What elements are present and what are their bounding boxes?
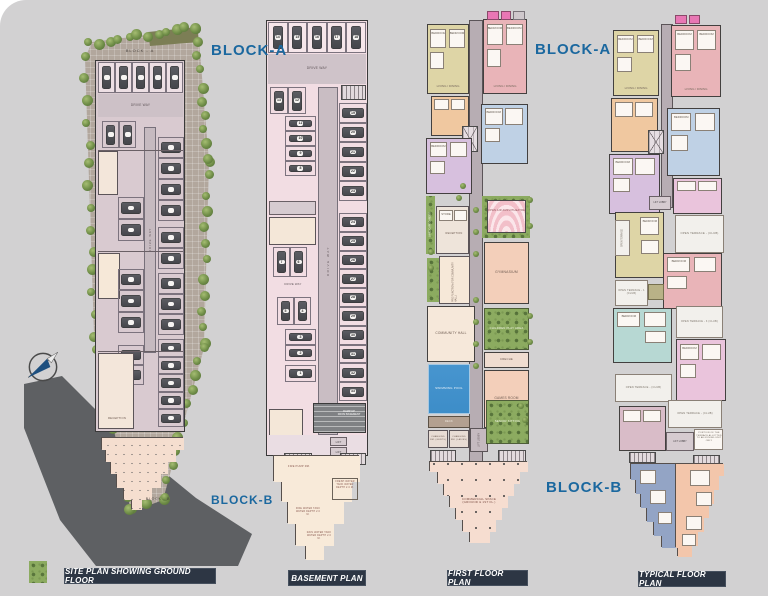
room: BEDROOM (667, 257, 690, 272)
parking-number: 26 (350, 258, 356, 263)
basement-ramp-label: RAMP UPFROM BASEMENT (334, 410, 364, 416)
parking-stall: 4 (294, 297, 311, 325)
parking-stall: 19 (339, 103, 367, 123)
car-icon (161, 163, 181, 174)
room (430, 52, 444, 68)
parking-number (168, 381, 174, 386)
caption-basement-text: BASEMENT PLAN (291, 574, 363, 583)
parking-stall (158, 227, 184, 248)
block-b-label-right: BLOCK-B (546, 479, 622, 496)
room (658, 512, 672, 524)
bush-icon (473, 207, 479, 213)
car-icon: 32 (342, 368, 363, 378)
parking-number (128, 320, 134, 325)
typical-open-terrace-v: OPEN TERRACE (615, 220, 630, 256)
car-icon: 33 (342, 387, 363, 397)
parking-number (108, 132, 114, 137)
room-label: BEDROOM (614, 161, 632, 164)
car-icon (121, 295, 141, 307)
tree-icon (201, 111, 210, 120)
car-icon (161, 319, 181, 330)
basement-store-room (269, 217, 316, 245)
parking-stall (158, 273, 184, 294)
site-drive-strip-label: DRIVE WAY (148, 228, 152, 252)
room-label: BEDROOM (638, 38, 654, 41)
tree-icon (192, 51, 201, 60)
room (682, 534, 696, 546)
typical-open-terrace-r2: OPEN TERRACE - 3 (CLUB) (676, 306, 723, 338)
typical-open-terrace-l1: OPEN TERRACE - 1 (CLUB) (615, 280, 648, 306)
parking-number: 25 (350, 239, 356, 244)
site-block-a-building: DRIVE WAY DRIVE WAY RECEPTION (95, 60, 185, 432)
site-utility-room-1 (98, 151, 118, 195)
car-icon: 2 (289, 349, 313, 357)
parking-number (168, 281, 174, 286)
parking-number (168, 187, 174, 192)
typical-unit-teal: BEDROOM (613, 308, 672, 363)
parking-stall: 16 (307, 22, 327, 53)
parking-number: 31 (350, 352, 356, 357)
parking-stall (118, 312, 144, 333)
tree-icon (113, 441, 124, 452)
north-compass-icon (22, 346, 64, 388)
car-icon (161, 278, 181, 289)
room-label: STORE (440, 213, 452, 216)
tree-icon (201, 239, 210, 248)
room: BEDROOM (697, 30, 716, 50)
parking-stall: 26 (339, 251, 367, 270)
caption-typical-floor-plan: TYPICAL FLOOR PLAN (638, 571, 726, 587)
typical-terrace-note: PORTION OF THE TERRACE ALLOTTED TO ADJOI… (696, 432, 722, 442)
car-icon: 31 (342, 349, 363, 359)
parking-number (125, 132, 131, 137)
room-label: BEDROOM (507, 27, 522, 30)
room (643, 410, 661, 422)
parking-stall: 20 (339, 123, 367, 143)
site-reception-label: RECEPTION (100, 417, 134, 420)
tree-icon (124, 504, 135, 515)
first-deck: DECK (428, 416, 470, 428)
bush-icon (473, 319, 479, 325)
room-label: LIVING / DINING (428, 85, 468, 88)
first-unit-red: BEDROOM BEDROOM LIVING / DINING (483, 19, 527, 94)
room (671, 135, 688, 151)
site-block-a-label: BLOCK - A (110, 49, 170, 54)
room-label: BEDROOM (681, 347, 698, 350)
first-changing-gents-label: CHANGING RM. (GENTS) (429, 436, 447, 441)
tree-icon (86, 141, 95, 150)
car-icon: 17 (331, 26, 341, 49)
basement-drive-strip: DRIVE WAY (318, 87, 338, 435)
room: BEDROOM (671, 113, 691, 131)
tree-icon (113, 35, 122, 44)
room (677, 181, 696, 191)
block-a-label-left: BLOCK-A (211, 42, 287, 59)
block-a-label-right: BLOCK-A (535, 41, 611, 58)
bush-icon (527, 313, 533, 319)
bush-icon (527, 197, 533, 203)
car-icon (123, 125, 132, 145)
basement-stalls-col-g: 24252627282930313233 (339, 213, 367, 401)
parking-stall: 21 (339, 142, 367, 162)
first-changing-gents: CHANGING RM. (GENTS) (428, 430, 448, 448)
parking-stall: 31 (339, 345, 367, 364)
parking-stall: 33 (339, 382, 367, 401)
typical-open-terrace-tower: OPEN TERRACE - (CLUB) (668, 400, 722, 428)
tree-icon (106, 37, 116, 47)
typical-unit-khaki-1: BEDROOM BEDROOM LIVING / DINING (613, 30, 659, 96)
car-icon: 6 (294, 251, 303, 273)
tree-icon (172, 24, 183, 35)
parking-number (104, 75, 110, 80)
tree-icon (202, 206, 213, 217)
basement-stalls-pair-a: 1312 (270, 87, 306, 114)
car-icon (161, 232, 181, 243)
room (487, 49, 501, 67)
parking-number (168, 256, 174, 261)
room (650, 490, 666, 504)
parking-stall: 24 (339, 213, 367, 232)
tree-icon (197, 307, 206, 316)
first-amphitheatre (487, 200, 526, 233)
car-icon (161, 396, 181, 405)
room (645, 331, 667, 343)
tree-icon (122, 476, 131, 485)
typical-unit-pink-2: BEDROOM (676, 339, 726, 401)
wall (98, 150, 183, 151)
bush-icon (527, 339, 533, 345)
room-label: BEDROOM (641, 220, 658, 223)
typical-lift-lobby-tower: LIFT LOBBY (666, 432, 694, 451)
typical-open-terrace-2 (648, 284, 664, 300)
room (694, 257, 717, 272)
first-children-play: CHILDREN PLAY AREA (484, 308, 529, 350)
car-icon (161, 378, 181, 387)
bush-icon (428, 249, 434, 255)
car-icon (121, 317, 141, 329)
site-stall-col-r4 (158, 339, 184, 427)
car-icon: 15 (292, 26, 302, 49)
parking-number (172, 75, 178, 80)
parking-stall: 18 (346, 22, 366, 53)
car-icon: 9 (289, 150, 313, 158)
tree-icon (200, 291, 210, 301)
room-label: BEDROOM (698, 33, 715, 36)
room (635, 102, 653, 117)
site-stall-col-c2 (118, 269, 144, 333)
parking-stall: 13 (270, 87, 288, 114)
parking-number (128, 228, 134, 233)
room: BEDROOM (675, 30, 694, 50)
parking-stall: 27 (339, 269, 367, 288)
parking-stall: 1 (285, 365, 316, 382)
parking-number: 27 (350, 277, 356, 282)
basement-driveway-label: DRIVE WAY (307, 67, 327, 71)
first-changing-ladies: CHANGING RM. (LADIES) (449, 430, 469, 448)
bush-icon (473, 251, 479, 257)
tree-icon (94, 39, 105, 50)
bush-icon (473, 363, 479, 369)
room (667, 276, 686, 289)
parking-stall (158, 314, 184, 335)
parking-number: 2 (297, 351, 303, 356)
bush-icon (473, 297, 479, 303)
tree-icon (200, 338, 211, 349)
typical-lift-lobby-top-label: LIFT LOBBY (654, 202, 667, 204)
parking-stall: 3 (285, 329, 316, 345)
parking-number: 17 (334, 35, 340, 40)
basement-fire-tank-label: FIRE WATER TANK WATER DEPTH 2.0 M. (294, 508, 322, 516)
bush-icon (518, 403, 524, 409)
car-icon: 30 (342, 330, 363, 340)
parking-stall (118, 219, 144, 241)
tree-icon (199, 222, 209, 232)
parking-number (168, 166, 174, 171)
basement-rain-tank-label: RAIN WATER TANK WATER DEPTH 2.0 M. (306, 532, 332, 540)
first-corridor (469, 20, 483, 462)
room (617, 57, 632, 72)
room-label: BEDROOM (450, 32, 464, 35)
first-prefunction: PRE FUNCTION (FOR COMMUNITY HALL) (439, 256, 470, 304)
first-stairs-left (430, 450, 456, 462)
site-driveway-band: DRIVE WAY (98, 94, 183, 117)
block-b-label-left: BLOCK-B (211, 493, 273, 507)
basement-stalls-col-b: 1920212223 (339, 103, 367, 201)
first-landscape-label: LANDSCAPE GARDEN (430, 213, 432, 237)
parking-number: 4 (300, 309, 306, 314)
car-icon: 4 (298, 301, 307, 322)
caption-basement-plan: BASEMENT PLAN (288, 570, 366, 586)
tree-icon (205, 157, 215, 167)
room: BEDROOM (640, 217, 659, 235)
parking-stall (115, 62, 132, 93)
parking-number (128, 277, 134, 282)
basement-drive-strip-label: DRIVE WAY (326, 246, 330, 276)
room: BEDROOM (449, 29, 465, 48)
room: BEDROOM (613, 158, 633, 174)
car-icon: 1 (289, 369, 313, 378)
parking-number: 19 (350, 111, 356, 116)
parking-number (138, 75, 144, 80)
room (698, 181, 717, 191)
first-gymnasium: GYMNASIUM (484, 242, 529, 304)
first-prefunction-label: PRE FUNCTION (FOR COMMUNITY HALL) (452, 258, 458, 302)
tree-icon (162, 476, 170, 484)
car-icon: 10 (289, 135, 313, 143)
room (644, 312, 667, 327)
room (680, 364, 696, 378)
car-icon (161, 253, 181, 264)
parking-number: 12 (294, 98, 300, 103)
parking-stall: 22 (339, 162, 367, 182)
first-deck-label: DECK (445, 421, 453, 424)
basement-driveway-label-2: DRIVE WAY (273, 283, 313, 286)
car-icon: 19 (342, 108, 363, 119)
tree-icon (190, 23, 201, 34)
tree-icon (116, 459, 124, 467)
site-stall-pair (102, 121, 136, 148)
room-label: BEDROOM (486, 111, 502, 114)
parking-stall (158, 179, 184, 200)
parking-number: 8 (297, 166, 303, 171)
parking-stall: 30 (339, 326, 367, 345)
car-icon (136, 66, 145, 89)
parking-number (168, 302, 174, 307)
car-icon: 7 (277, 251, 286, 273)
car-icon: 20 (342, 127, 363, 138)
parking-stall: 2 (285, 345, 316, 361)
site-drive-strip: DRIVE WAY (144, 127, 156, 353)
bush-icon (473, 341, 479, 347)
room (613, 178, 630, 192)
plan-sheet: DRIVE WAY DRIVE WAY RECEPTION BLOCK - A … (0, 0, 768, 596)
parking-number: 23 (350, 189, 356, 194)
wall (98, 251, 183, 252)
basement-fresh-tank-label: FRESH WATER TANK WATER DEPTH 2.0 M. (333, 481, 357, 489)
room: BEDROOM (637, 35, 655, 53)
parking-stall: 29 (339, 307, 367, 326)
bush-icon (522, 417, 528, 423)
tree-icon (197, 97, 207, 107)
tree-icon (170, 446, 180, 456)
first-children-play-label: CHILDREN PLAY AREA (490, 327, 524, 330)
typical-open-terrace-r1-label: OPEN TERRACE - (CLUB) (680, 232, 720, 235)
room (695, 113, 715, 131)
caption-typical-text: TYPICAL FLOOR PLAN (639, 570, 725, 588)
room-label: BEDROOM (668, 260, 689, 263)
parking-number: 14 (275, 35, 281, 40)
parking-stall (119, 121, 136, 148)
parking-number: 3 (297, 335, 303, 340)
first-changing-ladies-label: CHANGING RM. (LADIES) (450, 436, 468, 441)
basement-stalls-col-e: 32 (285, 329, 316, 361)
typical-unit-blue: BEDROOM (667, 108, 720, 176)
car-icon (121, 202, 141, 214)
basement-stairs-br (340, 453, 366, 465)
room (451, 99, 465, 110)
basement-ramp: RAMP UPFROM BASEMENT (313, 403, 366, 433)
parking-number: 13 (276, 98, 282, 103)
parking-stall (118, 197, 144, 219)
parking-stall (102, 121, 119, 148)
car-icon (161, 414, 181, 423)
typical-terrace-note-room: PORTION OF THE TERRACE ALLOTTED TO ADJOI… (694, 429, 723, 450)
car-icon: 27 (342, 274, 363, 284)
typical-roof-box-1 (675, 15, 687, 24)
parking-number: 6 (296, 260, 302, 265)
parking-number (168, 398, 174, 403)
room: BEDROOM (617, 35, 635, 53)
car-icon: 29 (342, 311, 363, 321)
first-entry-rooms: STORE RECEPTION (436, 206, 469, 254)
parking-number: 24 (350, 220, 356, 225)
tree-icon (190, 370, 201, 381)
room-label: BEDROOM (618, 315, 639, 318)
basement-passage (268, 435, 367, 455)
tree-icon (143, 32, 153, 42)
car-icon: 13 (274, 91, 283, 111)
tree-icon (169, 461, 178, 470)
car-icon (121, 224, 141, 236)
tree-icon (193, 357, 201, 365)
room (690, 470, 710, 486)
site-utility-room-2 (98, 253, 120, 299)
first-landscape-strip: LANDSCAPE GARDEN (426, 196, 435, 254)
tree-icon (201, 138, 212, 149)
parking-number: 28 (350, 295, 356, 300)
typical-roof-box-2 (689, 15, 700, 24)
tree-icon (193, 37, 203, 47)
car-icon (106, 125, 115, 145)
first-unit-khaki: BEDROOM BEDROOM LIVING / DINING (427, 24, 469, 94)
tree-icon (179, 22, 189, 32)
typical-core-stairs (648, 130, 664, 154)
basement-stalls-pair-c: 76 (273, 247, 307, 277)
parking-number: 18 (353, 35, 359, 40)
room: BEDROOM (485, 108, 503, 124)
tree-icon (172, 432, 183, 443)
tree-icon (131, 29, 142, 40)
parking-number (168, 416, 174, 421)
parking-number: 9 (297, 151, 303, 156)
parking-stall: 17 (327, 22, 347, 53)
tree-icon (86, 226, 95, 235)
car-icon: 26 (342, 255, 363, 265)
parking-number: 21 (350, 150, 356, 155)
room (641, 240, 659, 254)
tree-icon (126, 33, 134, 41)
tree-icon (84, 158, 94, 168)
typical-lift-lobby-top: LIFT LOBBY (649, 196, 671, 210)
parking-stall: 8 (285, 161, 316, 176)
room (640, 470, 656, 484)
parking-stall: 32 (339, 363, 367, 382)
parking-stall (158, 137, 184, 158)
caption-site-plan: SITE PLAN SHOWING GROUND FLOOR (64, 568, 216, 584)
parking-number: 29 (350, 314, 356, 319)
typical-unit-pink-1 (673, 178, 722, 214)
parking-stall: 10 (285, 131, 316, 146)
parking-number (121, 75, 127, 80)
room (430, 161, 445, 174)
parking-stall: 15 (288, 22, 308, 53)
first-creche: CRECHE (484, 352, 529, 368)
car-icon: 23 (342, 186, 363, 197)
basement-lift-1: LIFT (330, 437, 347, 446)
car-icon (153, 66, 162, 89)
bush-icon (460, 183, 466, 189)
car-icon: 3 (289, 333, 313, 341)
site-corner-planter (29, 561, 47, 583)
parking-stall: 7 (273, 247, 290, 277)
first-lift-lobby-label: LIFT LOBBY (478, 433, 481, 447)
first-creche-label: CRECHE (500, 358, 513, 361)
first-senior-sitting-label: SENIOR SITTING (493, 420, 523, 423)
tree-icon (81, 52, 90, 61)
first-community-hall-label: COMMUNITY HALL (435, 332, 466, 336)
parking-number (168, 208, 174, 213)
tree-icon (82, 119, 90, 127)
tree-icon (205, 170, 214, 179)
parking-number (128, 299, 134, 304)
room (505, 108, 523, 124)
basement-stalls-col-f: 1 (285, 365, 316, 382)
first-roof-box-1 (487, 11, 499, 20)
caption-first-text: FIRST FLOOR PLAN (448, 569, 527, 587)
parking-stall (158, 409, 184, 427)
caption-site-text: SITE PLAN SHOWING GROUND FLOOR (65, 567, 215, 585)
parking-stall (158, 339, 184, 357)
